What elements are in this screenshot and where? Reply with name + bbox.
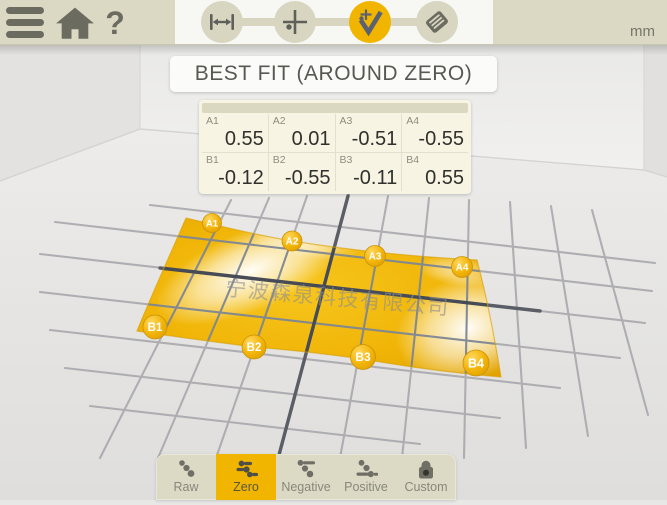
tab-raw[interactable]: Raw — [156, 454, 216, 500]
step-length-setup-button[interactable] — [201, 1, 243, 43]
step-report-button[interactable] — [416, 1, 458, 43]
home-icon — [54, 5, 96, 41]
svg-text:A3: A3 — [369, 252, 382, 263]
tab-positive[interactable]: Positive — [336, 454, 396, 500]
tab-label: Negative — [281, 480, 330, 494]
cell-value: 0.55 — [225, 128, 264, 151]
cell-label: B2 — [273, 154, 286, 166]
cell-value: -0.55 — [285, 167, 331, 190]
cell-b2: B2 -0.55 — [268, 153, 335, 191]
svg-text:B4: B4 — [468, 357, 484, 371]
svg-text:A1: A1 — [206, 219, 219, 230]
svg-text:B3: B3 — [355, 350, 371, 364]
cell-a1: A1 0.55 — [202, 114, 268, 152]
tab-label: Raw — [173, 480, 198, 494]
cell-label: A4 — [406, 115, 419, 127]
lock-icon — [414, 459, 438, 479]
tab-negative[interactable]: Negative — [276, 454, 336, 500]
cell-b4: B4 0.55 — [401, 153, 468, 191]
cell-value: 0.01 — [292, 128, 331, 151]
zero-dots-icon — [234, 459, 258, 479]
svg-text:B2: B2 — [247, 342, 262, 354]
step-measure-points-button[interactable] — [274, 1, 316, 43]
point-marker-b1: B1 — [143, 315, 167, 339]
point-marker-a4: A4 — [452, 257, 473, 278]
cell-label: A2 — [273, 115, 286, 127]
cell-b3: B3 -0.11 — [335, 153, 402, 191]
check-point-icon — [353, 5, 387, 39]
point-marker-a3: A3 — [365, 246, 386, 267]
raw-dots-icon — [174, 459, 198, 479]
svg-text:A4: A4 — [456, 263, 469, 274]
point-marker-b4: B4 — [463, 350, 489, 376]
report-icon — [420, 5, 454, 39]
cell-value: -0.11 — [353, 167, 397, 190]
table-header-strip — [202, 103, 468, 113]
cell-b1: B1 -0.12 — [202, 153, 268, 191]
table-row-a: A1 0.55 A2 0.01 A3 -0.51 A4 -0.55 — [202, 114, 468, 152]
cell-label: B3 — [340, 154, 353, 166]
length-arrows-icon — [205, 5, 239, 39]
cell-a3: A3 -0.51 — [335, 114, 402, 152]
cell-label: B1 — [206, 154, 219, 166]
cell-value: -0.55 — [418, 128, 464, 151]
cell-label: B4 — [406, 154, 419, 166]
top-bar: ? — [0, 0, 667, 45]
negative-dots-icon — [294, 459, 318, 479]
point-marker-a2: A2 — [282, 231, 302, 251]
point-marker-a1: A1 — [203, 214, 222, 233]
cell-a4: A4 -0.55 — [401, 114, 468, 152]
hamburger-icon — [6, 7, 44, 14]
workflow-steps — [175, 0, 493, 44]
svg-text:B1: B1 — [148, 322, 163, 334]
cell-label: A1 — [206, 115, 219, 127]
tab-label: Custom — [404, 480, 447, 494]
crosshair-point-icon — [278, 5, 312, 39]
cell-label: A3 — [340, 115, 353, 127]
cell-a2: A2 0.01 — [268, 114, 335, 152]
hamburger-icon — [6, 31, 44, 38]
tab-label: Positive — [344, 480, 388, 494]
point-marker-b2: B2 — [242, 335, 266, 359]
positive-dots-icon — [354, 459, 378, 479]
question-mark-icon: ? — [105, 5, 125, 41]
display-mode-tabbar: Raw Zero Negative — [156, 454, 456, 500]
step-connector-line — [222, 18, 437, 26]
tab-custom[interactable]: Custom — [396, 454, 456, 500]
step-best-fit-button[interactable] — [349, 1, 391, 43]
point-marker-b3: B3 — [351, 345, 376, 370]
cell-value: -0.51 — [352, 128, 398, 151]
page-title: BEST FIT (AROUND ZERO) — [170, 56, 497, 92]
cell-value: -0.12 — [218, 167, 264, 190]
help-button[interactable]: ? — [102, 2, 128, 42]
home-button[interactable] — [54, 5, 96, 41]
menu-button[interactable] — [6, 7, 46, 38]
table-row-b: B1 -0.12 B2 -0.55 B3 -0.11 B4 0.55 — [202, 152, 468, 191]
tab-zero[interactable]: Zero — [216, 454, 276, 500]
unit-label: mm — [630, 23, 655, 40]
results-table: A1 0.55 A2 0.01 A3 -0.51 A4 -0.55 B1 -0.… — [199, 100, 471, 194]
svg-text:A2: A2 — [286, 237, 299, 248]
cell-value: 0.55 — [425, 167, 464, 190]
hamburger-icon — [6, 19, 44, 26]
tab-label: Zero — [233, 480, 259, 494]
